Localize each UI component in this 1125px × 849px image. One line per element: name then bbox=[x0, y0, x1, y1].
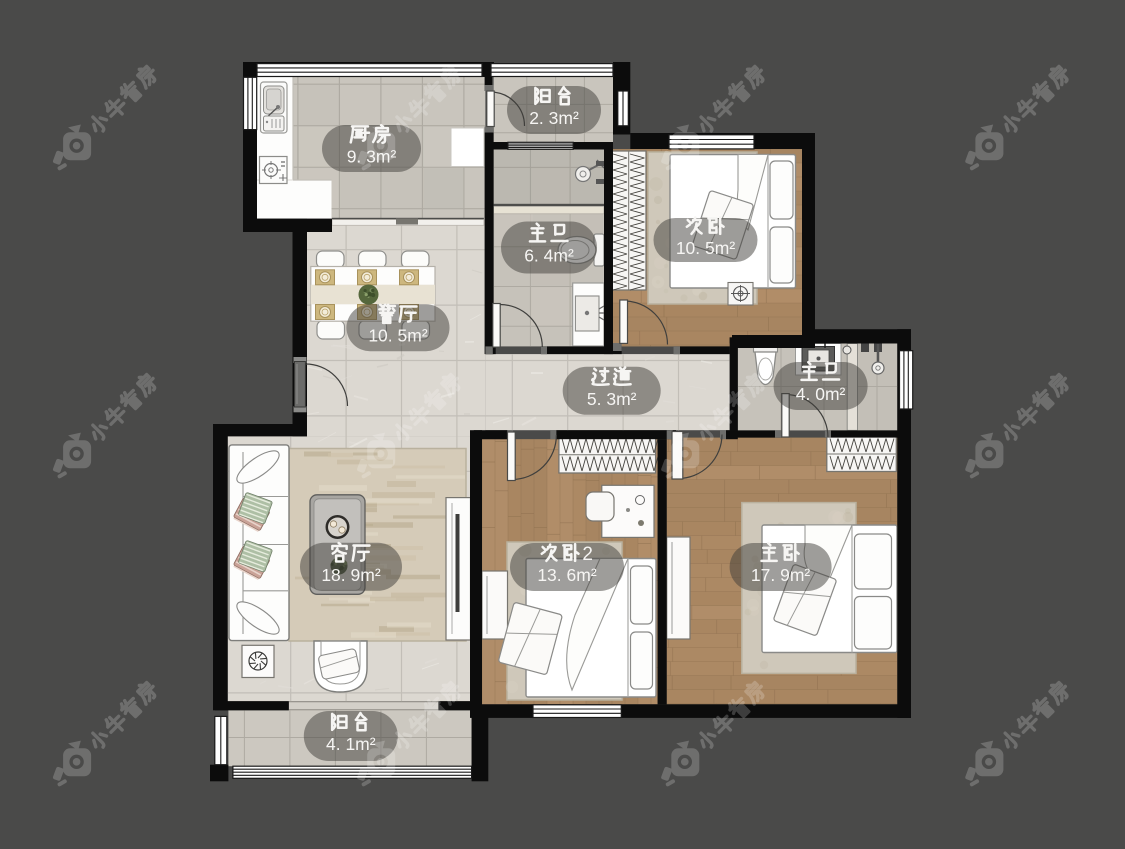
svg-text:2. 3m²: 2. 3m² bbox=[529, 108, 579, 128]
svg-text:4. 1m²: 4. 1m² bbox=[326, 734, 376, 754]
svg-text:5. 3m²: 5. 3m² bbox=[587, 389, 637, 409]
svg-text:4. 0m²: 4. 0m² bbox=[796, 384, 846, 404]
svg-text:2: 2 bbox=[582, 544, 593, 565]
svg-text:10. 5m²: 10. 5m² bbox=[368, 326, 427, 346]
svg-text:10. 5m²: 10. 5m² bbox=[676, 238, 735, 258]
svg-text:17. 9m²: 17. 9m² bbox=[751, 565, 810, 585]
svg-text:6. 4m²: 6. 4m² bbox=[524, 246, 574, 266]
svg-text:13. 6m²: 13. 6m² bbox=[537, 565, 596, 585]
svg-text:18. 9m²: 18. 9m² bbox=[321, 565, 380, 585]
